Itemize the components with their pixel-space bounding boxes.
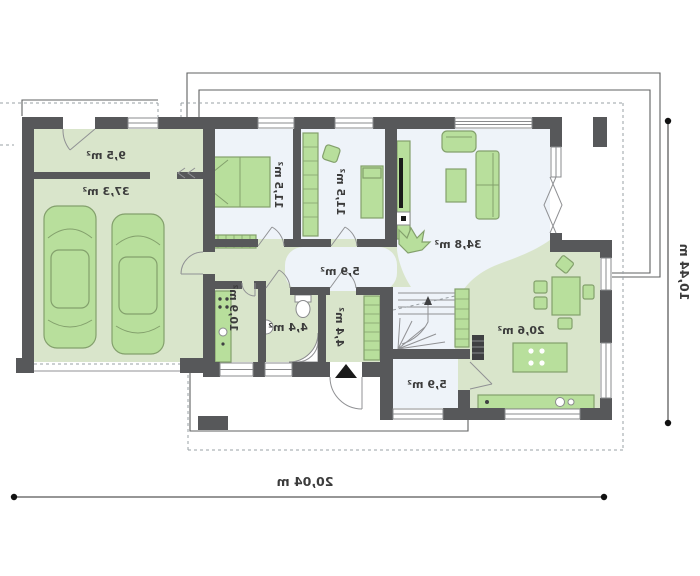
dimension-label-width: 20,04 m xyxy=(270,474,340,490)
car-1 xyxy=(44,206,96,348)
floor-plan-canvas: 9,5 m² 37,3 m² 11,5 m² 11,5 m² 34,8 m² 5… xyxy=(0,0,700,576)
window xyxy=(551,147,561,177)
window xyxy=(601,258,611,290)
radiator-icon xyxy=(472,335,484,360)
toilet-icon xyxy=(295,295,311,318)
kitchen-island xyxy=(513,343,567,372)
eave-outline-left xyxy=(22,100,158,116)
porch-step xyxy=(198,416,228,430)
bed-single xyxy=(361,166,383,218)
room-label-entry-room: 5,9 m² xyxy=(401,377,453,391)
sofa xyxy=(476,151,499,219)
room-label-utility-store: 9,5 m² xyxy=(80,148,132,162)
window xyxy=(220,363,253,376)
window xyxy=(505,409,580,419)
window xyxy=(601,343,611,398)
room-label-bedroom-left: 11,5 m² xyxy=(272,159,286,211)
floor-plan-drawing xyxy=(0,0,700,576)
room-label-vestibule: 4,4 m² xyxy=(333,301,347,353)
car-2 xyxy=(112,214,164,354)
armchair xyxy=(442,131,476,152)
pantry-closet xyxy=(455,289,469,347)
room-label-utility-room: 10,9 m² xyxy=(227,282,241,334)
room-label-bedroom-right: 11,5 m² xyxy=(334,166,348,218)
window xyxy=(393,409,443,419)
entry-closet xyxy=(364,296,380,360)
room-label-living-room: 34,8 m² xyxy=(432,237,484,251)
window xyxy=(265,363,292,376)
room-label-kitchen-dining: 20,6 m² xyxy=(495,323,547,337)
room-label-hall: 5,9 m² xyxy=(314,264,366,278)
window xyxy=(335,118,373,128)
chimney xyxy=(593,117,607,147)
wardrobe-bedroom-right xyxy=(303,133,318,236)
tv-icon xyxy=(399,158,403,208)
coffee-table xyxy=(446,169,466,202)
window-wide xyxy=(455,118,532,128)
door-main-entrance xyxy=(330,377,362,409)
kitchen-counter xyxy=(478,395,594,409)
room-label-garage: 37,3 m² xyxy=(80,184,132,198)
room-label-bathroom: 4,4 m² xyxy=(262,320,314,334)
window xyxy=(258,118,294,128)
window xyxy=(128,118,158,128)
bed-double xyxy=(210,157,270,207)
dimension-label-depth: 10,44 m xyxy=(676,237,692,307)
tv-cabinet xyxy=(396,141,410,239)
entrance-arrow-icon xyxy=(335,364,357,378)
